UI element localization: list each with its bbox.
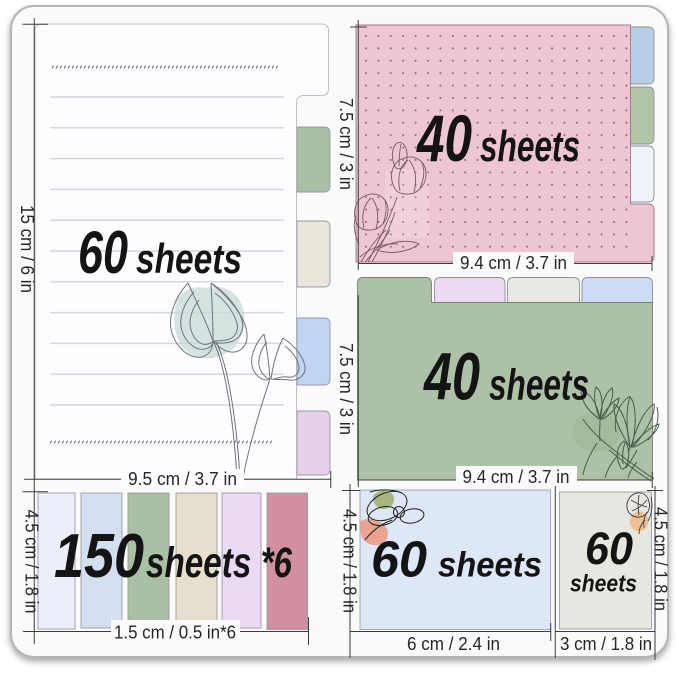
svg-text:60: 60 [78,219,128,286]
svg-text:sheets: sheets [489,361,589,410]
svg-text:3 cm / 1.8 in: 3 cm / 1.8 in [560,633,652,654]
svg-text:40: 40 [422,340,480,415]
svg-text:9.5 cm / 3.7 in: 9.5 cm / 3.7 in [128,468,237,489]
svg-text:sheets: sheets [136,235,242,282]
svg-text:7.5 cm / 3 in: 7.5 cm / 3 in [336,343,357,435]
svg-text:9.4 cm / 3.7 in: 9.4 cm / 3.7 in [460,252,567,273]
svg-text:sheets *6: sheets *6 [146,539,293,587]
svg-text:6 cm / 2.4 in: 6 cm / 2.4 in [407,633,500,654]
svg-text:15 cm / 6 in: 15 cm / 6 in [17,205,38,293]
svg-text:4.5 cm / 1.8 in: 4.5 cm / 1.8 in [651,507,672,611]
svg-text:4.5 cm / 1.8 in: 4.5 cm / 1.8 in [22,510,43,614]
svg-text:sheets: sheets [480,122,580,171]
svg-text:60: 60 [371,531,427,588]
svg-text:150: 150 [54,522,144,591]
svg-text:1.5 cm / 0.5 in*6: 1.5 cm / 0.5 in*6 [114,622,236,643]
svg-text:sheets: sheets [570,571,637,598]
svg-text:7.5 cm / 3 in: 7.5 cm / 3 in [336,98,357,190]
svg-text:40: 40 [416,101,473,175]
svg-text:60: 60 [585,523,633,574]
svg-text:sheets: sheets [438,546,542,585]
svg-text:4.5 cm / 1.8 in: 4.5 cm / 1.8 in [340,509,361,613]
svg-text:9.4 cm / 3.7 in: 9.4 cm / 3.7 in [463,466,570,487]
